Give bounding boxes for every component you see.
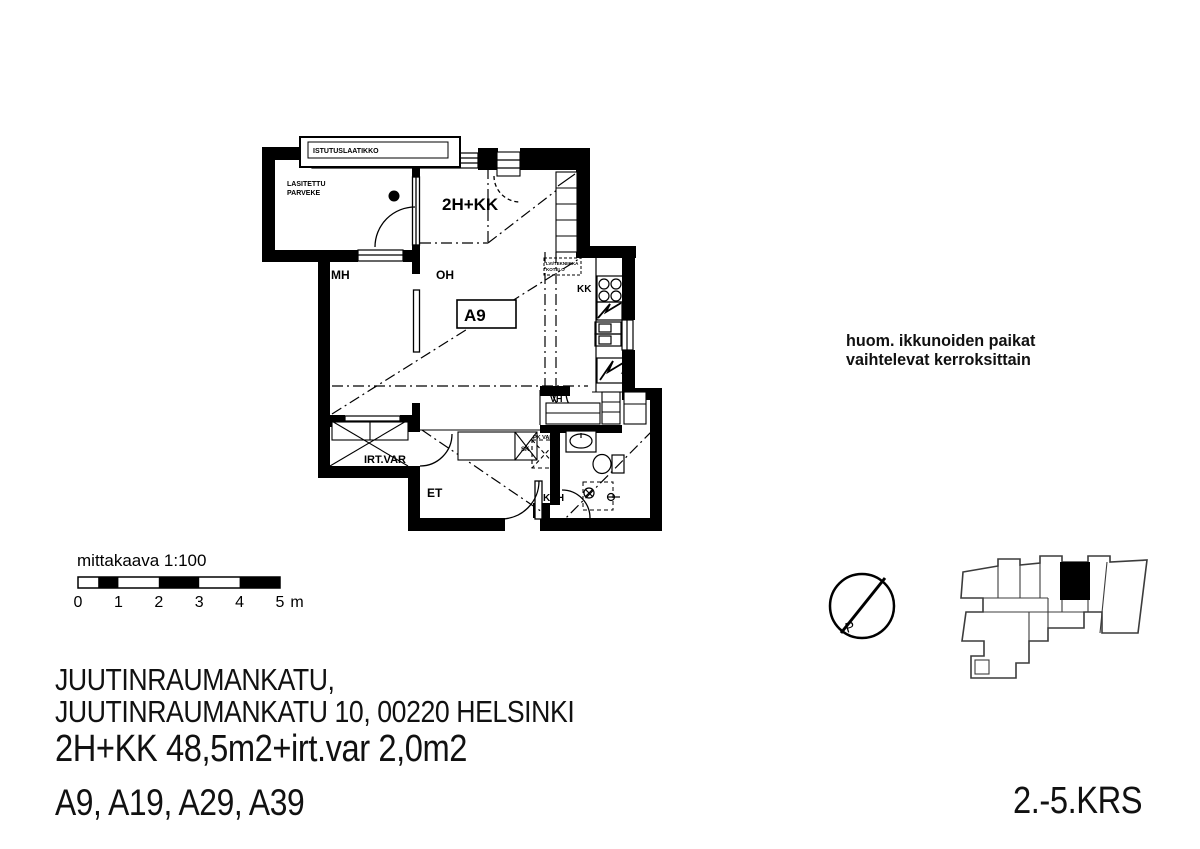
- irtvar-door-arc: [420, 434, 452, 466]
- unit-type-label: 2H+KK: [442, 195, 499, 214]
- scale-tick-1: 1: [114, 594, 123, 611]
- et-label: ET: [427, 486, 443, 500]
- kk-label: KK: [577, 284, 592, 295]
- north-arrow: P: [830, 574, 894, 638]
- kph-label: KPH: [543, 493, 564, 504]
- balcony-label-2: PARVEKE: [287, 190, 321, 197]
- mh-label: MH: [331, 268, 350, 282]
- toilet: [593, 455, 611, 474]
- vh-label: VH: [550, 394, 563, 404]
- apartment-number: A9: [464, 306, 486, 325]
- address-line-2: JUUTINRAUMANKATU 10, 00220 HELSINKI: [55, 694, 574, 730]
- window-note: huom. ikkunoiden paikat vaihtelevat kerr…: [846, 331, 1045, 369]
- scale-tick-3: 3: [195, 594, 204, 611]
- planter-box: ISTUTUSLAATIKKO: [300, 137, 460, 167]
- apartment-units-line: A9, A19, A29, A39: [55, 782, 304, 824]
- key-plan: [961, 556, 1147, 678]
- key-plan-highlighted-unit: [1060, 562, 1090, 600]
- balcony-door-arc: [375, 207, 415, 247]
- duct-note-1: LVI/TEKNIIKKA: [546, 261, 579, 266]
- apartment-size-line: 2H+KK 48,5m2+irt.var 2,0m2: [55, 728, 467, 771]
- floors-label: 2.-5.KRS: [1013, 780, 1142, 823]
- irtvar-label: IRT.VAR: [364, 454, 406, 466]
- window-note-line1: huom. ikkunoiden paikat: [846, 331, 1035, 350]
- scale-tick-2: 2: [154, 594, 163, 611]
- oh-label: OH: [436, 268, 454, 282]
- pkvar-label: PK VAR: [533, 435, 553, 441]
- balcony-dot: [389, 191, 400, 202]
- kitchen-fixtures: [544, 258, 631, 392]
- address-line-1: JUUTINRAUMANKATU,: [55, 662, 335, 698]
- sk-label: SK: [521, 447, 530, 453]
- kph-door-arc: [562, 490, 590, 518]
- scale-tick-0: 0: [74, 594, 83, 611]
- apartment-number-box: A9: [457, 300, 516, 328]
- window-note-line2: vaihtelevat kerroksittain: [846, 350, 1035, 369]
- scale-bar: mittakaava 1:100 0 1 2 3 4 5 m: [74, 551, 304, 611]
- scale-label: mittakaava 1:100: [77, 551, 206, 570]
- duct-note-2: KOTELO: [546, 267, 565, 272]
- balcony-label-1: LASITETTU: [287, 181, 326, 188]
- scale-tick-4: 4: [235, 594, 244, 611]
- scale-unit: m: [290, 594, 303, 611]
- scale-tick-5: 5: [276, 594, 285, 611]
- floorplan-page: ISTUTUSLAATIKKO: [0, 0, 1200, 849]
- planter-label: ISTUTUSLAATIKKO: [313, 148, 379, 155]
- apartment-plan: ISTUTUSLAATIKKO: [262, 137, 662, 531]
